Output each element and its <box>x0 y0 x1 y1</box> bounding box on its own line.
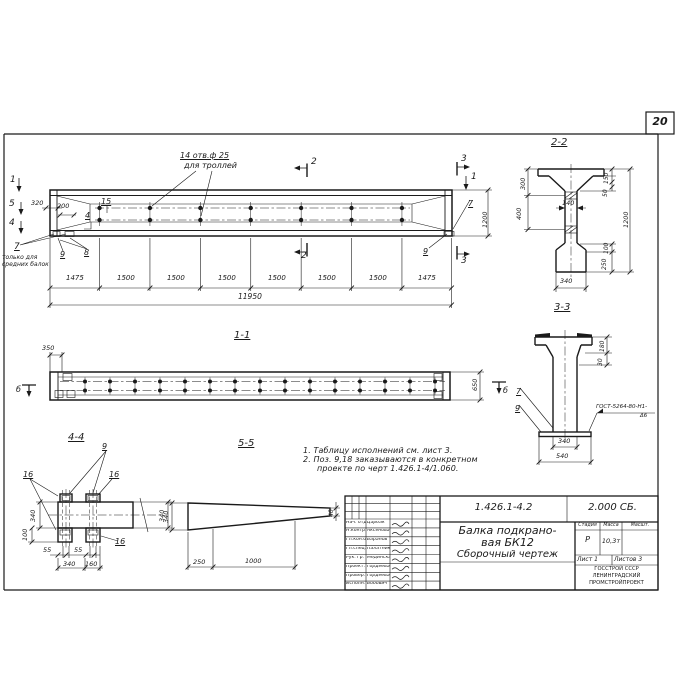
section-mark-b-right: б <box>503 387 508 395</box>
signature-scribble <box>392 531 409 535</box>
sheet-frame <box>4 112 674 590</box>
staff-name: Гордеева <box>367 574 390 579</box>
dim-340-33: 340 <box>558 438 570 445</box>
pos-7-33: 7 <box>516 388 521 396</box>
dim-55-a: 55 <box>43 547 51 554</box>
signature-scribble <box>392 584 409 588</box>
dim-150-22: 150 <box>604 173 610 184</box>
dim-total: 11950 <box>238 293 262 301</box>
dim-340-44-bottom: 340 <box>63 561 75 568</box>
dim-650: 650 <box>472 379 479 391</box>
dim-span: 1500 <box>369 275 387 282</box>
dim-1200-22: 1200 <box>623 211 630 228</box>
view-title-5-5: 5-5 <box>238 439 254 449</box>
sheet-count-label: Лист 1 <box>577 557 598 563</box>
sheets-total-label: Листов 3 <box>614 557 642 563</box>
dim-span: 1475 <box>66 275 84 282</box>
scale-label: Масшт. <box>622 524 658 529</box>
section-mark-5-left: 5 <box>9 200 15 209</box>
dim-span: 1500 <box>117 275 135 282</box>
weld-callout-line2: Δ6 <box>640 414 647 420</box>
staff-role: Рук. гр. <box>346 556 366 561</box>
staff-role: Н.контр. <box>346 529 366 534</box>
dim-30-33: 30 <box>598 358 604 366</box>
signature-scribble <box>392 566 409 570</box>
staff-role: Нач. отд <box>346 521 366 526</box>
drawing-title-line1: Балка подкрано- <box>440 525 575 536</box>
dim-200: 200 <box>57 203 69 210</box>
dim-50-22: 50 <box>603 189 609 197</box>
dim-55-b: 55 <box>74 547 82 554</box>
dim-250-22: 250 <box>602 259 608 270</box>
dim-300-22: 300 <box>520 178 527 190</box>
staff-role: Провер. <box>346 574 366 579</box>
staff-name: Гордеева <box>367 565 390 570</box>
dim-340-55: 340 <box>163 511 170 523</box>
staff-name: Бобович <box>367 582 390 587</box>
section-mark-1-left: 1 <box>10 176 16 185</box>
document-code: 2.000 СБ. <box>567 503 658 513</box>
view-title-4-4: 4-4 <box>68 433 84 443</box>
elevation-note-line2: средних балок <box>2 262 49 268</box>
dim-span: 1500 <box>268 275 286 282</box>
staff-name: Палатников <box>367 547 390 552</box>
note-line-3: проекте по черт 1.426.1-4/1.060. <box>317 465 459 473</box>
staff-role: Проект. <box>346 565 366 570</box>
pos-7: 7 <box>14 243 20 252</box>
pos-4: 4 <box>85 212 90 220</box>
dim-350: 350 <box>42 345 54 352</box>
section-mark-3-bottom: 3 <box>461 257 467 266</box>
section-view-3-3 <box>519 330 655 465</box>
pos-16-c: 16 <box>115 538 125 546</box>
sheet-number: 20 <box>646 116 674 127</box>
holes-callout-line1: 14 отв.ф 25 <box>180 152 229 160</box>
dim-100-22: 100 <box>604 243 610 254</box>
section-2-2-dims <box>524 169 634 292</box>
dim-540-33: 540 <box>556 453 568 460</box>
dim-340-44-left: 340 <box>30 510 37 522</box>
signature-scribble <box>392 540 409 544</box>
organization-line1: ГОССТРОЙ СССР <box>575 567 658 572</box>
dim-span: 1500 <box>218 275 236 282</box>
drawing-sheet: 14 отв.ф 25для троллей1543202001547тольк… <box>0 0 700 700</box>
pos-9-44: 9 <box>102 443 107 451</box>
staff-name: Баранов <box>367 538 390 543</box>
section-mark-2-bottom: 2 <box>301 252 307 261</box>
section-cut-marks <box>307 162 457 260</box>
signature-scribble <box>392 557 409 561</box>
drawing-title-line3: Сборочный чертеж <box>440 550 575 560</box>
dim-160-44: 160 <box>85 561 97 568</box>
elevation-centerlines <box>95 208 410 220</box>
signature-scribble <box>392 549 409 553</box>
pos-16-a: 16 <box>23 471 33 479</box>
dim-span: 1475 <box>418 275 436 282</box>
stage-value: Р <box>575 536 600 544</box>
dim-100-44: 100 <box>22 529 29 541</box>
section-mark-2-top: 2 <box>311 158 317 167</box>
mass-value: 10,3т <box>600 538 622 545</box>
organization-line3: ПРОМСТРОЙПРОЕКТ <box>575 581 658 586</box>
signature-scribble <box>392 575 409 579</box>
document-number: 1.426.1-4.2 <box>440 503 567 513</box>
signature-scribble <box>392 522 409 526</box>
dim-250-55: 250 <box>193 559 205 566</box>
weld-callout-line1: ГОСТ-5264-80-Н1- <box>596 405 647 411</box>
dim-span: 1500 <box>167 275 185 282</box>
pos-9: 9 <box>60 251 65 259</box>
staff-role: Гл.спец. <box>346 547 366 552</box>
note-line-2: 2. Поз. 9,18 заказываются в конкретном <box>303 456 478 464</box>
view-title-1-1: 1-1 <box>234 331 250 341</box>
section-mark-b-left: б <box>16 386 21 394</box>
dim-140-22: 140 <box>562 200 574 207</box>
stage-label: Стадия <box>575 524 600 529</box>
section-view-2-2 <box>524 164 634 292</box>
staff-role: Исполн. <box>346 582 366 587</box>
plan-view-1-1 <box>22 352 506 400</box>
dim-180-33: 180 <box>600 341 606 352</box>
pos-9-33: 9 <box>515 405 520 413</box>
staff-name: Аксенова <box>367 529 390 534</box>
dim-1000-55: 1000 <box>245 558 262 565</box>
dim-340-22: 340 <box>560 278 572 285</box>
drawing-title-line2: вая БК12 <box>440 537 575 548</box>
staff-name: Царбак <box>367 521 390 526</box>
organization-line2: ЛЕНИНГРАДСКИЙ <box>575 574 658 579</box>
pos-8: 8 <box>84 249 89 257</box>
dim-400-22: 400 <box>516 208 523 220</box>
section-3-3-dims <box>519 337 655 465</box>
section-mark-1-right: 1 <box>471 173 477 182</box>
section-mark-3-top: 3 <box>461 155 467 164</box>
pos-16-b: 16 <box>109 471 119 479</box>
mass-label: Масса <box>600 524 622 529</box>
section-mark-4-left: 4 <box>9 219 15 228</box>
pos-7-right: 7 <box>468 200 473 208</box>
pos-15: 15 <box>101 198 111 206</box>
dim-1200-elevation: 1200 <box>482 211 489 228</box>
holes-callout-line2: для троллей <box>184 162 237 170</box>
dim-40-55: 40 <box>329 509 335 517</box>
staff-role: Гл.кон.от <box>346 538 366 543</box>
note-line-1: 1. Таблицу исполнений см. лист 3. <box>303 447 452 455</box>
section-b-marks <box>22 382 506 394</box>
view-title-2-2: 2-2 <box>551 138 567 148</box>
pos-9-right: 9 <box>423 248 428 256</box>
view-title-3-3: 3-3 <box>554 303 570 313</box>
staff-name: Мединская <box>367 556 390 561</box>
drawing-linework <box>0 0 700 700</box>
dim-320: 320 <box>31 200 43 207</box>
dim-span: 1500 <box>318 275 336 282</box>
